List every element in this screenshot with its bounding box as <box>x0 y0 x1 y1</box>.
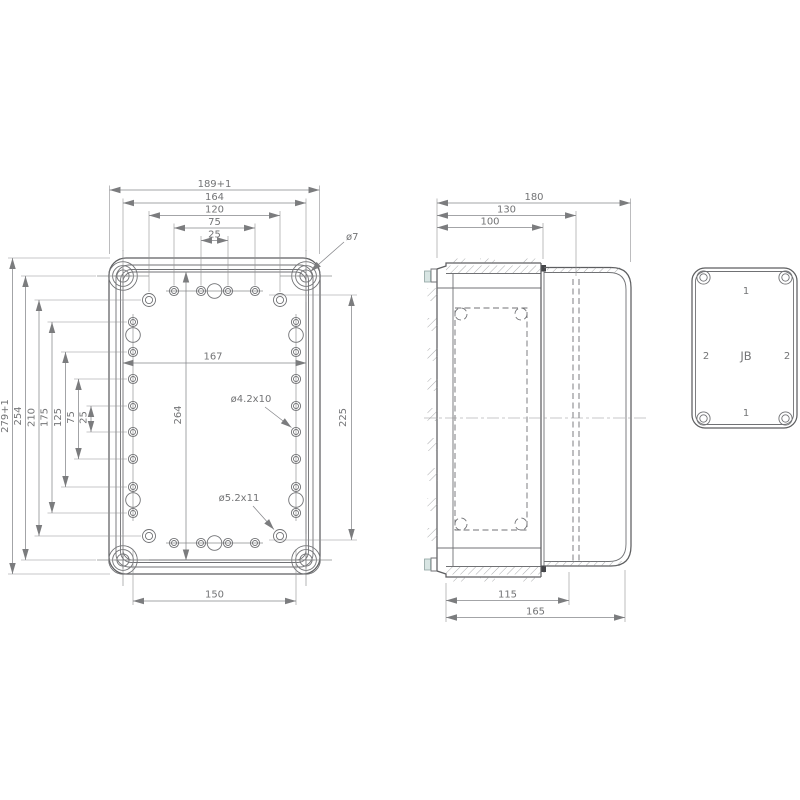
dim-bottom-150: 150 <box>205 590 224 601</box>
dim-knockouts-x-75: 75 <box>208 217 221 228</box>
lid-corner-hole <box>697 412 710 425</box>
dim-bottom-165: 165 <box>526 607 545 618</box>
body-corner-hook <box>431 558 437 571</box>
front-view-dims-left: 279+1 254 210 175 125 75 25 <box>0 258 141 574</box>
front-view: 189+1 164 120 75 25 279+1 254 210 <box>0 179 358 605</box>
lid-corner-hole <box>697 271 710 284</box>
callout-cover-screw-hole: ø7 <box>346 232 358 243</box>
dim-boss-spacing-y: 254 <box>13 406 24 425</box>
front-view-callouts: ø7 ø4.2x10 ø5.2x11 <box>219 232 359 530</box>
side-view-body <box>425 259 547 582</box>
dim-side-knockouts-75: 75 <box>66 411 77 424</box>
dim-rows-spacing: 225 <box>338 408 349 427</box>
gasket-end <box>425 559 431 570</box>
front-view-dims-inner: 167 264 <box>123 272 307 561</box>
knockout-ribs <box>428 288 438 541</box>
technical-drawing-canvas: 189+1 164 120 75 25 279+1 254 210 <box>0 0 800 800</box>
mounting-tab <box>451 577 467 582</box>
dim-corner-holes-y: 210 <box>27 408 38 427</box>
body-corner-hook <box>431 269 437 282</box>
dim-inner-height: 264 <box>173 405 184 424</box>
lid-label-top: 1 <box>743 286 749 297</box>
lid-label-center: JB <box>739 349 751 363</box>
lid-label-right: 2 <box>784 351 790 362</box>
dim-depth-100: 100 <box>480 217 499 228</box>
dim-side-knockouts-125: 125 <box>53 408 64 427</box>
front-view-dim-bottom: 150 <box>133 549 296 605</box>
dim-overall-height: 279+1 <box>0 399 11 433</box>
technical-drawing-page: 189+1 164 120 75 25 279+1 254 210 <box>0 0 800 800</box>
front-view-outline <box>109 258 320 574</box>
hidden-mounting-rect <box>455 308 527 530</box>
side-view-lid <box>544 268 631 567</box>
mounting-tab <box>451 259 467 264</box>
screw-boss <box>280 534 332 586</box>
lid-view: 1 2 JB 2 1 <box>692 268 797 428</box>
mounting-tab <box>480 259 495 264</box>
lid-outline <box>544 268 631 567</box>
lid-corner-hole <box>779 412 792 425</box>
callout-corner-hole: ø5.2x11 <box>219 493 260 504</box>
dim-overall-width: 189+1 <box>198 179 232 190</box>
dim-depth-180: 180 <box>524 192 543 203</box>
screw-boss <box>97 534 149 586</box>
dim-side-knockouts-25: 25 <box>79 411 90 424</box>
dim-knockouts-x-25: 25 <box>208 230 221 241</box>
mounting-tab <box>522 259 537 264</box>
dim-boss-spacing-x: 164 <box>205 192 224 203</box>
dim-inner-width: 167 <box>203 352 222 363</box>
lid-label-bottom: 1 <box>743 408 749 419</box>
gasket-end <box>425 271 431 282</box>
dim-depth-130: 130 <box>497 205 516 216</box>
lid-corner-hole <box>779 271 792 284</box>
lid-label-left: 2 <box>703 351 709 362</box>
side-view: 180 130 100 115 165 <box>424 192 649 622</box>
seal-section <box>542 265 547 272</box>
side-view-hidden-features <box>424 308 649 530</box>
mounting-tab <box>522 577 537 582</box>
front-view-side-knockout-columns <box>126 314 304 521</box>
front-view-dims-top: 189+1 164 120 75 25 <box>110 179 320 292</box>
dim-side-knockouts-175: 175 <box>40 408 51 427</box>
dim-corner-holes-x: 120 <box>205 205 224 216</box>
callout-side-hole: ø4.2x10 <box>231 394 272 405</box>
front-view-inner-corner-holes <box>143 294 287 543</box>
dim-bottom-115: 115 <box>498 590 517 601</box>
enclosure-outer-edge <box>109 258 320 574</box>
mounting-tab <box>480 577 495 582</box>
